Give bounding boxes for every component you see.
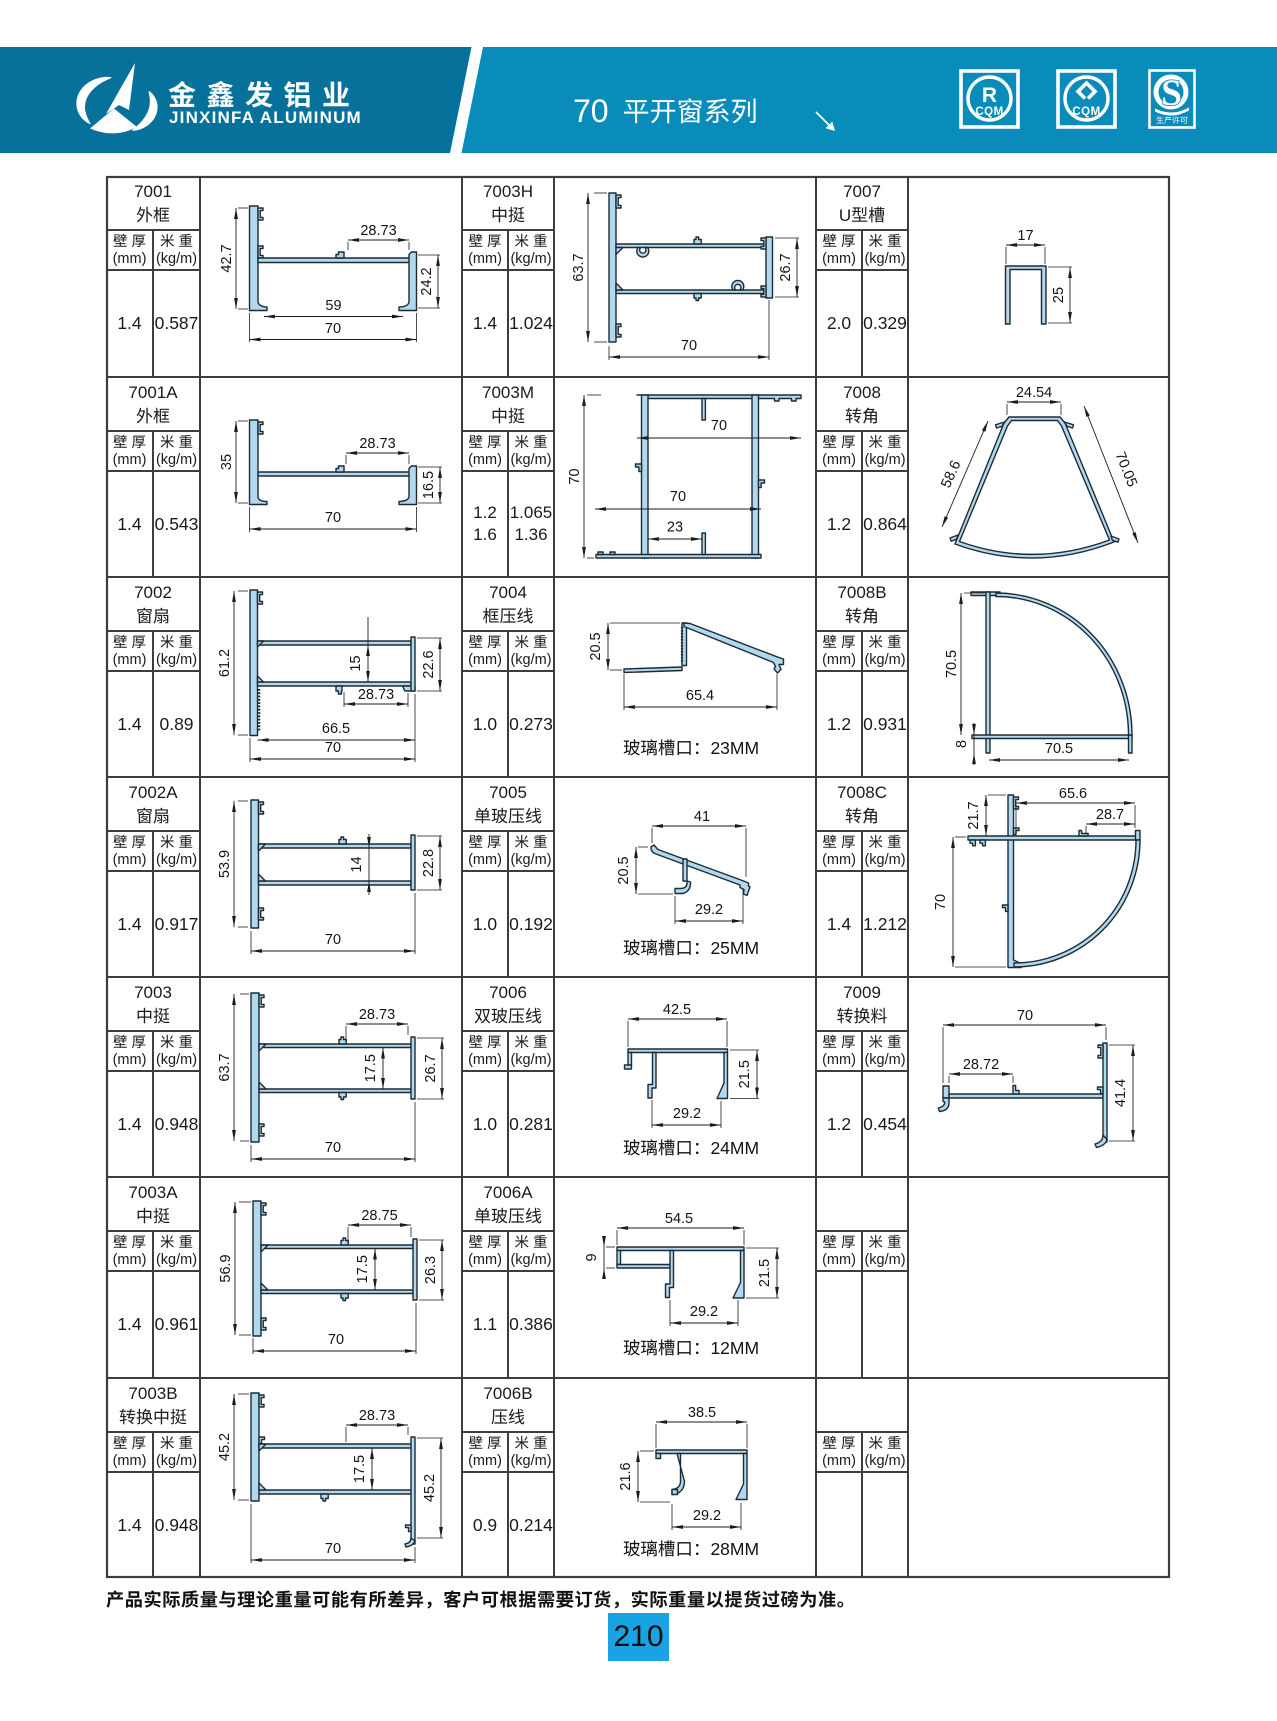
svg-text:70: 70 xyxy=(325,1541,341,1557)
svg-text:17: 17 xyxy=(1017,228,1033,244)
svg-text:59: 59 xyxy=(325,298,341,314)
svg-text:70: 70 xyxy=(325,932,341,948)
svg-text:21.7: 21.7 xyxy=(966,801,982,829)
svg-text:45.2: 45.2 xyxy=(422,1474,438,1502)
svg-text:21.5: 21.5 xyxy=(757,1259,773,1287)
svg-text:28.73: 28.73 xyxy=(358,687,394,703)
svg-text:20.5: 20.5 xyxy=(616,856,632,884)
svg-text:70: 70 xyxy=(711,418,727,434)
svg-text:16.5: 16.5 xyxy=(421,471,437,499)
svg-text:70: 70 xyxy=(328,1332,344,1348)
svg-text:65.4: 65.4 xyxy=(686,688,714,704)
svg-text:29.2: 29.2 xyxy=(690,1304,718,1320)
svg-text:70: 70 xyxy=(933,894,949,910)
svg-text:22.8: 22.8 xyxy=(421,849,437,877)
svg-text:24.2: 24.2 xyxy=(419,267,435,295)
svg-text:21.6: 21.6 xyxy=(618,1462,634,1490)
svg-text:54.5: 54.5 xyxy=(665,1211,693,1227)
svg-text:66.5: 66.5 xyxy=(322,721,350,737)
svg-text:29.2: 29.2 xyxy=(693,1508,721,1524)
svg-text:58.6: 58.6 xyxy=(938,458,964,490)
svg-text:35: 35 xyxy=(219,454,235,470)
svg-text:29.2: 29.2 xyxy=(673,1106,701,1122)
svg-text:70: 70 xyxy=(325,1140,341,1156)
svg-text:26.7: 26.7 xyxy=(778,253,794,281)
svg-text:63.7: 63.7 xyxy=(571,253,587,281)
svg-text:70: 70 xyxy=(325,321,341,337)
svg-text:26.7: 26.7 xyxy=(423,1054,439,1082)
svg-text:28.73: 28.73 xyxy=(360,223,396,239)
svg-text:70: 70 xyxy=(1017,1008,1033,1024)
svg-text:20.5: 20.5 xyxy=(588,632,604,660)
svg-text:70.5: 70.5 xyxy=(944,650,960,678)
svg-text:9: 9 xyxy=(584,1253,600,1261)
svg-text:28.73: 28.73 xyxy=(359,436,395,452)
svg-text:28.75: 28.75 xyxy=(361,1208,397,1224)
svg-text:70.05: 70.05 xyxy=(1111,450,1139,490)
svg-text:17.5: 17.5 xyxy=(363,1054,379,1082)
svg-text:61.2: 61.2 xyxy=(217,649,233,677)
svg-text:70: 70 xyxy=(325,740,341,756)
svg-text:14: 14 xyxy=(349,856,365,872)
svg-text:42.5: 42.5 xyxy=(663,1002,691,1018)
svg-text:25: 25 xyxy=(1051,287,1067,303)
svg-text:65.6: 65.6 xyxy=(1059,786,1087,802)
svg-text:28.72: 28.72 xyxy=(963,1057,999,1073)
svg-text:21.5: 21.5 xyxy=(737,1060,753,1088)
svg-text:70: 70 xyxy=(325,510,341,526)
svg-text:53.9: 53.9 xyxy=(217,850,233,878)
svg-text:70: 70 xyxy=(681,338,697,354)
svg-text:41: 41 xyxy=(694,809,710,825)
svg-text:45.2: 45.2 xyxy=(217,1433,233,1461)
svg-text:56.9: 56.9 xyxy=(218,1254,234,1282)
svg-text:15: 15 xyxy=(348,655,364,671)
svg-text:38.5: 38.5 xyxy=(688,1405,716,1421)
svg-text:17.5: 17.5 xyxy=(352,1455,368,1483)
svg-text:28.73: 28.73 xyxy=(359,1007,395,1023)
svg-text:26.3: 26.3 xyxy=(423,1256,439,1284)
svg-text:70: 70 xyxy=(567,468,583,484)
svg-text:8: 8 xyxy=(954,740,970,748)
svg-text:63.7: 63.7 xyxy=(217,1053,233,1081)
svg-text:28.7: 28.7 xyxy=(1096,807,1124,823)
svg-text:23: 23 xyxy=(667,520,683,536)
svg-text:41.4: 41.4 xyxy=(1113,1079,1129,1107)
svg-text:70.5: 70.5 xyxy=(1045,741,1073,757)
svg-text:17.5: 17.5 xyxy=(355,1255,371,1283)
svg-text:24.54: 24.54 xyxy=(1016,385,1052,401)
svg-text:29.2: 29.2 xyxy=(695,902,723,918)
svg-text:22.6: 22.6 xyxy=(421,650,437,678)
svg-text:42.7: 42.7 xyxy=(219,244,235,272)
svg-text:70: 70 xyxy=(670,489,686,505)
svg-text:28.73: 28.73 xyxy=(359,1408,395,1424)
